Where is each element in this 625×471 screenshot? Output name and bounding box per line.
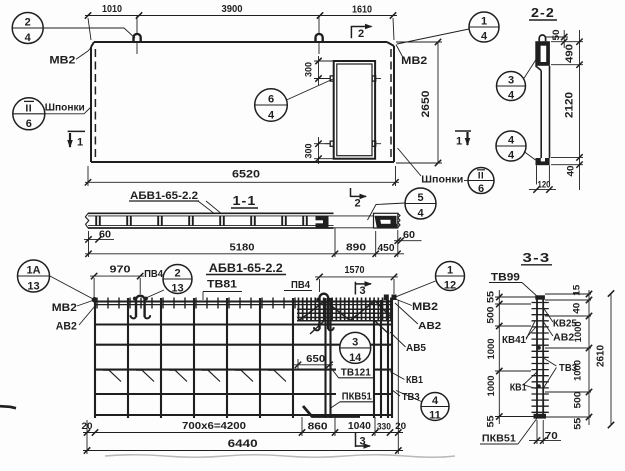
svg-text:14: 14 bbox=[349, 352, 362, 364]
svg-text:2650: 2650 bbox=[420, 91, 432, 118]
svg-text:4: 4 bbox=[432, 395, 439, 407]
svg-text:3900: 3900 bbox=[222, 3, 243, 15]
svg-text:МВ2: МВ2 bbox=[412, 301, 438, 313]
svg-text:МВ2: МВ2 bbox=[52, 302, 77, 314]
svg-text:1А: 1А bbox=[26, 265, 40, 277]
svg-text:1-1: 1-1 bbox=[233, 193, 257, 208]
svg-text:13: 13 bbox=[27, 280, 39, 292]
svg-text:АВ2: АВ2 bbox=[418, 320, 441, 332]
svg-text:АВ5: АВ5 bbox=[406, 342, 426, 354]
svg-text:13: 13 bbox=[171, 282, 183, 294]
svg-text:5180: 5180 bbox=[230, 242, 255, 254]
svg-text:КВ25: КВ25 bbox=[553, 319, 577, 330]
svg-text:2-2: 2-2 bbox=[531, 6, 555, 20]
svg-text:КВ41: КВ41 bbox=[502, 335, 526, 346]
svg-text:ПКВ51: ПКВ51 bbox=[342, 392, 372, 403]
svg-text:ТВ99: ТВ99 bbox=[491, 272, 520, 284]
svg-text:1: 1 bbox=[481, 16, 487, 28]
svg-text:2: 2 bbox=[358, 28, 364, 40]
svg-text:55: 55 bbox=[485, 290, 496, 303]
svg-text:АВ2: АВ2 bbox=[56, 321, 77, 333]
svg-text:ПКВ51: ПКВ51 bbox=[482, 433, 516, 445]
svg-text:АВ2: АВ2 bbox=[553, 333, 574, 344]
svg-text:ТВ3: ТВ3 bbox=[559, 363, 577, 374]
svg-text:2: 2 bbox=[174, 268, 180, 280]
svg-text:4: 4 bbox=[508, 135, 515, 147]
svg-text:6520: 6520 bbox=[232, 169, 260, 181]
svg-text:ТВ81: ТВ81 bbox=[207, 279, 237, 291]
svg-text:2120: 2120 bbox=[564, 92, 576, 118]
svg-text:3: 3 bbox=[508, 75, 514, 87]
svg-text:450: 450 bbox=[378, 243, 395, 254]
svg-text:1010: 1010 bbox=[102, 3, 122, 15]
svg-text:55: 55 bbox=[486, 415, 497, 428]
svg-text:2: 2 bbox=[25, 17, 31, 29]
svg-text:300: 300 bbox=[304, 62, 315, 77]
svg-text:ПВ4: ПВ4 bbox=[144, 268, 163, 280]
svg-text:500: 500 bbox=[572, 392, 583, 409]
svg-text:50: 50 bbox=[551, 30, 562, 41]
svg-text:4: 4 bbox=[25, 32, 32, 44]
svg-text:650: 650 bbox=[306, 354, 325, 365]
svg-text:4: 4 bbox=[268, 110, 275, 122]
svg-text:Шпонки: Шпонки bbox=[45, 102, 85, 114]
svg-text:70: 70 bbox=[545, 431, 559, 442]
svg-text:6: 6 bbox=[268, 94, 274, 106]
svg-text:890: 890 bbox=[346, 242, 366, 254]
svg-text:Шпонки: Шпонки bbox=[421, 174, 463, 186]
svg-text:1: 1 bbox=[447, 265, 453, 277]
svg-text:60: 60 bbox=[99, 230, 111, 241]
svg-text:120: 120 bbox=[538, 180, 551, 191]
svg-text:II: II bbox=[478, 170, 484, 181]
svg-text:330: 330 bbox=[377, 421, 391, 432]
svg-text:4: 4 bbox=[508, 150, 515, 162]
svg-text:860: 860 bbox=[308, 420, 328, 432]
svg-text:700х6=4200: 700х6=4200 bbox=[182, 420, 246, 432]
svg-text:1610: 1610 bbox=[352, 4, 372, 16]
svg-text:15: 15 bbox=[571, 284, 582, 296]
svg-text:970: 970 bbox=[110, 264, 131, 276]
svg-text:40: 40 bbox=[566, 166, 577, 177]
svg-text:4: 4 bbox=[508, 89, 515, 101]
svg-text:500: 500 bbox=[485, 307, 496, 324]
svg-text:4: 4 bbox=[481, 31, 488, 43]
svg-text:АБВ1-65-2.2: АБВ1-65-2.2 bbox=[130, 190, 198, 202]
svg-text:1000: 1000 bbox=[486, 376, 497, 397]
svg-text:55: 55 bbox=[572, 417, 583, 430]
svg-text:АБВ1-65-2.2: АБВ1-65-2.2 bbox=[209, 261, 283, 275]
svg-text:1: 1 bbox=[456, 136, 462, 148]
svg-text:МВ2: МВ2 bbox=[49, 55, 75, 67]
svg-text:11: 11 bbox=[429, 410, 441, 422]
svg-text:4: 4 bbox=[417, 208, 424, 220]
svg-text:2610: 2610 bbox=[595, 345, 607, 367]
svg-text:12: 12 bbox=[444, 279, 456, 291]
svg-text:40: 40 bbox=[572, 303, 583, 314]
svg-text:60: 60 bbox=[403, 230, 415, 241]
svg-text:5: 5 bbox=[417, 192, 423, 204]
svg-text:II: II bbox=[25, 102, 32, 114]
svg-text:3-3: 3-3 bbox=[523, 250, 551, 265]
svg-text:6440: 6440 bbox=[228, 438, 258, 450]
svg-text:1570: 1570 bbox=[345, 264, 365, 276]
svg-text:1000: 1000 bbox=[486, 339, 497, 360]
svg-text:ПВ4: ПВ4 bbox=[291, 279, 310, 291]
svg-text:3: 3 bbox=[359, 285, 365, 297]
svg-text:3: 3 bbox=[359, 436, 365, 448]
svg-text:6: 6 bbox=[26, 118, 32, 130]
svg-text:ТВ121: ТВ121 bbox=[341, 368, 371, 379]
svg-text:МВ2: МВ2 bbox=[401, 55, 427, 67]
svg-text:1040: 1040 bbox=[348, 420, 371, 432]
svg-text:2: 2 bbox=[354, 198, 360, 210]
svg-text:6: 6 bbox=[478, 183, 484, 195]
svg-text:300: 300 bbox=[304, 144, 315, 159]
svg-text:490: 490 bbox=[564, 44, 576, 63]
svg-text:1: 1 bbox=[77, 137, 83, 149]
svg-text:20: 20 bbox=[395, 421, 406, 432]
svg-text:3: 3 bbox=[352, 337, 358, 349]
svg-text:КВ1: КВ1 bbox=[406, 375, 423, 386]
